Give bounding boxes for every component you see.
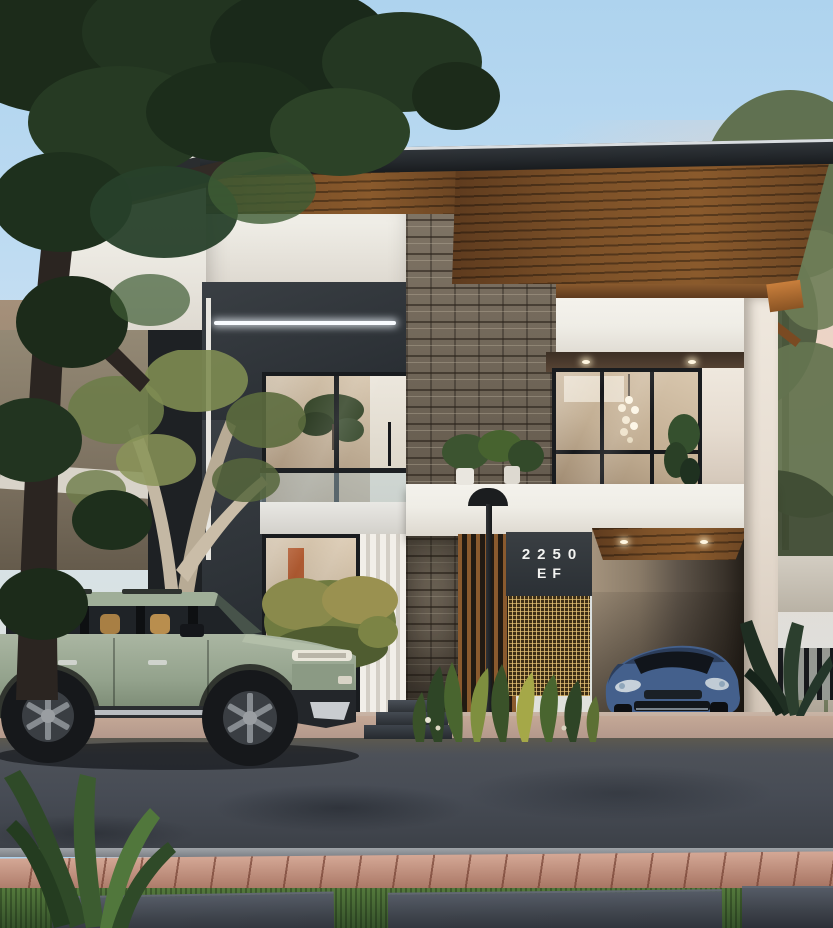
- side-eave: [766, 280, 804, 312]
- terrace-parapet: [522, 298, 774, 360]
- roof-soffit-right: [452, 160, 830, 284]
- foreground-plant: [0, 738, 190, 928]
- window-reflection: [556, 372, 698, 488]
- house-number-sign: 2250 EF: [506, 532, 592, 596]
- big-tree: [0, 0, 500, 700]
- garage-ceiling: [592, 528, 748, 560]
- agave-plant: [736, 604, 833, 722]
- stone-slab: [388, 889, 722, 928]
- window-upper-right: [552, 368, 702, 492]
- house-number-line1: 2250: [506, 546, 592, 565]
- stone-slab: [742, 886, 833, 928]
- scene-modern-house-exterior: 2250 EF: [0, 0, 833, 928]
- garage-light: [620, 540, 628, 544]
- garage-light: [700, 540, 708, 544]
- ceiling-light: [688, 360, 696, 364]
- house-number-line2: EF: [506, 565, 592, 583]
- ceiling-light: [582, 360, 590, 364]
